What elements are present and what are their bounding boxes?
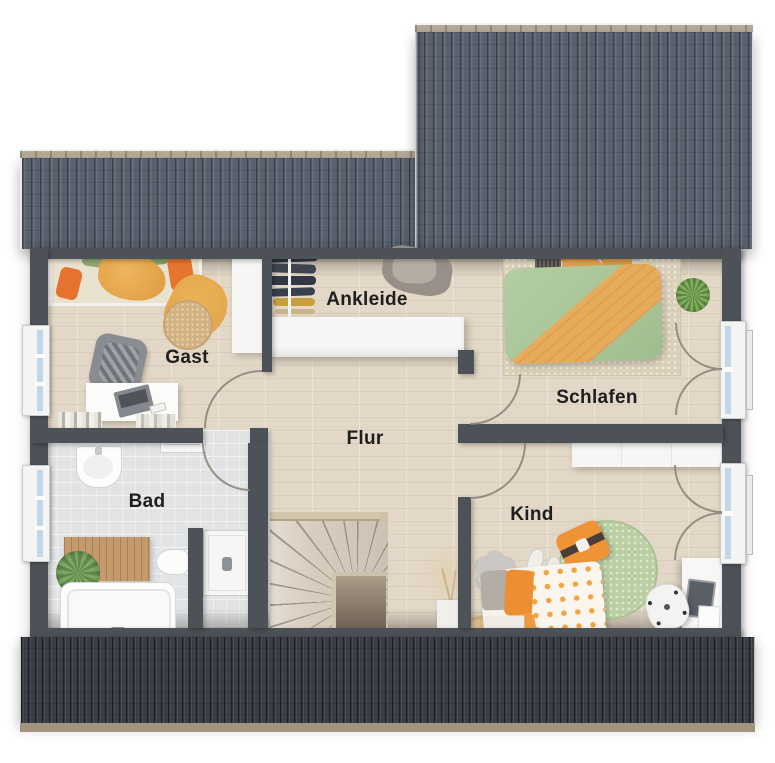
shoe-rack-pole: [288, 249, 291, 319]
window-glass: [37, 330, 43, 411]
balcony-handle: [746, 330, 753, 410]
winder-staircase: [270, 512, 388, 638]
door-mullion: [723, 511, 733, 516]
roof-tiles: [20, 158, 415, 249]
stair-well: [332, 572, 386, 632]
window-mullion: [35, 496, 45, 500]
stair-handrail: [270, 512, 388, 521]
shoe-pair: [270, 263, 316, 274]
armchair-cushion: [97, 341, 141, 388]
room-label-bad: Bad: [129, 491, 166, 513]
french-door-schlafen: [720, 321, 746, 419]
window-gast: [22, 325, 50, 416]
floorplan-canvas: Gast Ankleide Schlafen Flur Bad Kind: [0, 0, 775, 763]
shoe-pair: [268, 276, 316, 285]
roof-tiles: [415, 32, 753, 249]
room-label-schlafen: Schlafen: [556, 387, 638, 409]
shoe-pair: [270, 287, 315, 297]
roof-step-highlight: [415, 32, 422, 249]
potted-plant: [676, 278, 710, 312]
sink-tap: [95, 447, 102, 455]
room-label-ankleide: Ankleide: [326, 289, 408, 311]
orange-pillow: [504, 569, 534, 616]
window-bad: [22, 465, 50, 562]
jute-rug: [163, 300, 213, 350]
wall-shower-partition: [188, 528, 203, 628]
window-mullion: [35, 354, 45, 358]
wall-ankleide-stub: [458, 350, 474, 374]
window-glass: [37, 470, 43, 557]
toilet-bowl: [156, 549, 189, 575]
wall-top: [30, 248, 741, 259]
roof-eave-cap: [20, 723, 755, 734]
wall-left: [30, 248, 48, 645]
book-row: [58, 412, 102, 428]
wall-gast-bad-left: [30, 428, 203, 443]
chair-wheel-hub: [663, 603, 671, 611]
orange-runner: [502, 263, 663, 364]
room-label-flur: Flur: [346, 428, 383, 450]
window-mullion: [35, 526, 45, 530]
door-mullion: [723, 367, 733, 372]
laptop-screen: [118, 389, 148, 408]
wall-right: [722, 248, 741, 645]
gast-wardrobe: [232, 251, 264, 353]
book-row: [136, 414, 176, 429]
wall-bad-flur: [248, 443, 268, 628]
wall-gast-bad-right: [250, 428, 268, 443]
balcony-handle: [746, 475, 753, 555]
kind-wardrobe: [572, 440, 723, 467]
sink: [76, 446, 122, 488]
room-label-kind: Kind: [510, 504, 553, 526]
wall-schlafen-kind: [458, 424, 723, 443]
wall-gast-ankleide: [262, 259, 272, 372]
stair-handrail-cap: [380, 512, 388, 522]
schlafen-bed-duvet: [502, 263, 663, 364]
roof-tiles: [20, 637, 755, 723]
wall-kind-flur: [458, 497, 471, 628]
french-door-kind: [720, 463, 746, 564]
sink-basin: [83, 455, 113, 479]
roof-lower: [20, 637, 755, 735]
shoe-pair: [273, 298, 315, 306]
towel-fold-line: [164, 444, 200, 445]
shower-drain: [222, 557, 232, 571]
sandal-pair: [275, 309, 315, 314]
window-mullion: [35, 382, 45, 386]
room-label-gast: Gast: [165, 347, 208, 369]
ankleide-sideboard: [268, 317, 464, 357]
shower: [203, 530, 251, 596]
roof-upper-left: [20, 147, 415, 249]
roof-upper-right: [415, 21, 753, 249]
